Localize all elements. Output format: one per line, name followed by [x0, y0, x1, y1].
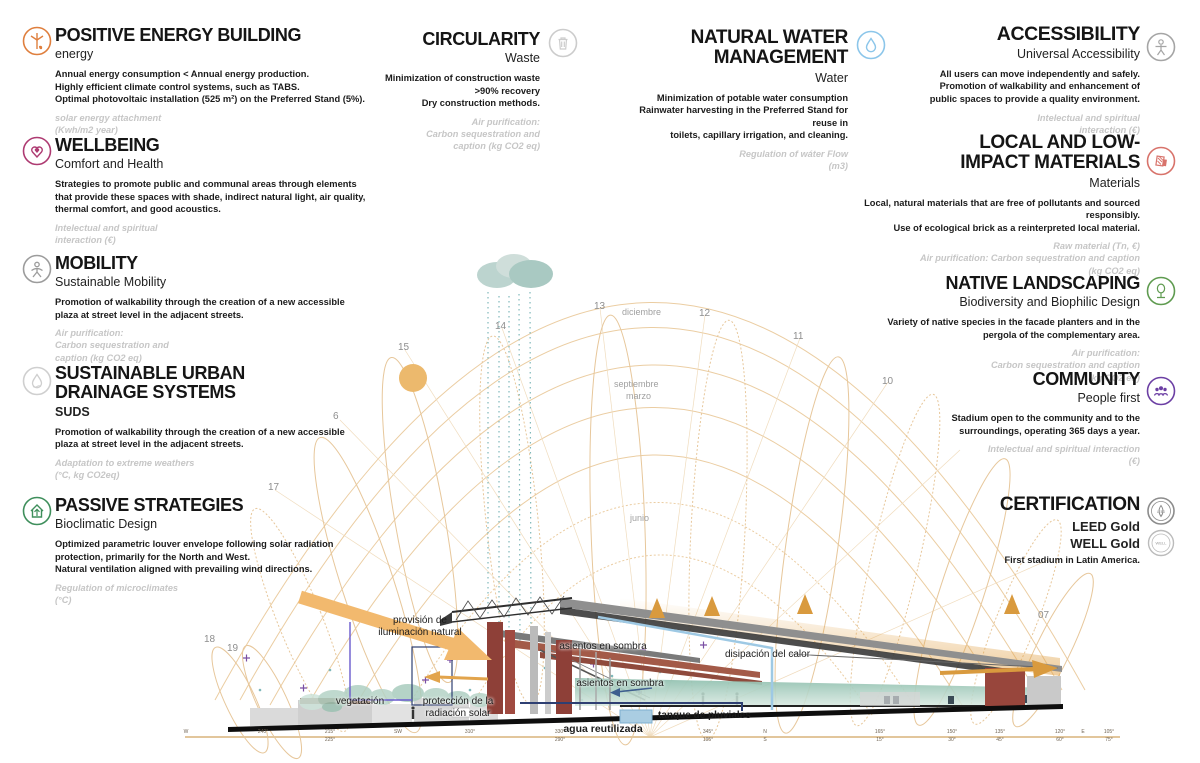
section-metric: Intelectual and spiritualinteraction (€) — [55, 222, 390, 246]
compass-tick: NS — [750, 729, 780, 744]
label-natural-light: provisión de iluminación natural — [355, 615, 485, 639]
compass-tick: 330°290° — [545, 729, 575, 744]
month-label: marzo — [626, 391, 651, 401]
hour-label: 13 — [594, 301, 605, 312]
brick-icon — [1146, 146, 1176, 176]
section-body: Strategies to promote public and communa… — [55, 178, 390, 216]
rainwater-tank — [620, 710, 652, 723]
section-subtitle: Biodiversity and Biophilic Design — [840, 295, 1140, 309]
pedestrian-icon — [22, 254, 52, 284]
reflected-light-arrow — [424, 671, 488, 683]
hour-label: 11 — [793, 331, 803, 342]
compass-tick: 345°195° — [693, 729, 723, 744]
compass-tick: 165°15° — [865, 729, 895, 744]
section-body: Local, natural materials that are free o… — [840, 197, 1140, 235]
cert-leed: LEED Gold — [840, 519, 1140, 534]
section-metric: Regulation of microclimates(°C) — [55, 582, 395, 606]
section-subtitle: Universal Accessibility — [840, 47, 1140, 61]
hour-label: 18 — [204, 634, 215, 645]
cloud-icon — [477, 254, 553, 288]
hour-label: 17 — [268, 482, 279, 493]
section-metric: Air purification:Carbon sequestration an… — [55, 327, 390, 363]
compass-tick: 310° — [455, 729, 485, 737]
section-title: LOCAL AND LOW-IMPACT MATERIALS — [840, 133, 1140, 174]
label-solar-protection: protección de la radiación solar — [408, 696, 508, 720]
section-metric: Regulation of wáter Flow(m3) — [618, 148, 848, 172]
section-metric: Air purification:Carbon sequestration an… — [310, 116, 540, 152]
section-accessibility: ACCESSIBILITY Universal Accessibility Al… — [840, 24, 1140, 136]
section-subtitle: People first — [840, 391, 1140, 405]
wind-turbine-icon — [22, 26, 52, 56]
section-subtitle: Water — [618, 71, 848, 85]
section-title: MOBILITY — [55, 254, 390, 273]
label-shade-upper: asientos en sombra — [518, 641, 688, 653]
section-wellbeing: WELLBEING Comfort and Health Strategies … — [55, 136, 390, 246]
section-subtitle: Sustainable Mobility — [55, 275, 390, 289]
well-badge-icon: WELL — [1146, 528, 1176, 558]
section-certification: CERTIFICATION LEED Gold WELL Gold First … — [840, 495, 1140, 567]
section-title: PASSIVE STRATEGIES — [55, 496, 395, 515]
section-body: Minimization of potable water consumptio… — [618, 92, 848, 142]
label-rain-tank: tanque de pluviales — [658, 710, 788, 722]
label-shade-lower: asientos en sombra — [555, 678, 685, 690]
hour-label: 07 — [1038, 610, 1049, 621]
month-label: diciembre — [622, 307, 661, 317]
hour-label: 15 — [398, 342, 409, 353]
passive-house-icon — [22, 496, 52, 526]
section-title: SUSTAINABLE URBANDRAINAGE SYSTEMS — [55, 364, 390, 403]
section-metric: Adaptation to extreme weathers(°C, kg CO… — [55, 457, 390, 481]
section-community: COMMUNITY People first Stadium open to t… — [840, 370, 1140, 468]
section-subtitle: Materials — [840, 176, 1140, 190]
compass-tick: 215°225° — [315, 729, 345, 744]
compass-tick: 150°30° — [937, 729, 967, 744]
section-body: Minimization of construction waste>90% r… — [310, 72, 540, 110]
section-body: All users can move independently and saf… — [840, 68, 1140, 106]
cert-note: First stadium in Latin America. — [840, 554, 1140, 567]
section-title: CIRCULARITY — [310, 30, 540, 49]
section-natural-water: NATURAL WATERMANAGEMENT Water Minimizati… — [618, 28, 848, 172]
sustainability-infographic-poster: provisión de iluminación natural asiento… — [0, 0, 1200, 763]
compass-tick: 240° — [248, 729, 278, 737]
hour-label: 19 — [227, 643, 238, 654]
section-title: ACCESSIBILITY — [840, 24, 1140, 45]
section-materials: LOCAL AND LOW-IMPACT MATERIALS Materials… — [840, 133, 1140, 277]
cert-well: WELL Gold — [840, 536, 1140, 551]
tree-icon — [1146, 276, 1176, 306]
month-label: septiembre — [614, 379, 659, 389]
section-subtitle: Comfort and Health — [55, 157, 390, 171]
section-title: NATIVE LANDSCAPING — [840, 274, 1140, 293]
compass-tick: W — [171, 729, 201, 737]
section-suds: SUSTAINABLE URBANDRAINAGE SYSTEMS SUDS P… — [55, 364, 390, 481]
label-vegetation: vegetación — [318, 696, 402, 708]
svg-text:LEED: LEED — [1157, 510, 1166, 514]
heart-icon — [22, 136, 52, 166]
section-title: NATURAL WATERMANAGEMENT — [618, 28, 848, 69]
svg-text:WELL: WELL — [1156, 541, 1168, 546]
section-body: Optimized parametric louver envelope fol… — [55, 538, 395, 576]
trash-bin-icon — [548, 28, 578, 58]
sun-icon — [399, 364, 427, 392]
section-title: CERTIFICATION — [840, 495, 1140, 515]
section-subtitle: SUDS — [55, 405, 390, 419]
compass-tick: 105°75° — [1094, 729, 1124, 744]
label-heat-dissipation: disipación del calor — [700, 649, 835, 661]
section-title: COMMUNITY — [840, 370, 1140, 389]
hour-label: 14 — [495, 321, 506, 332]
hour-label: 12 — [699, 308, 710, 319]
water-drop-gray-icon — [22, 366, 52, 396]
section-subtitle: Bioclimatic Design — [55, 517, 395, 531]
month-label: junio — [630, 513, 649, 523]
section-circularity: CIRCULARITY Waste Minimization of constr… — [310, 30, 540, 152]
section-subtitle: Waste — [310, 51, 540, 65]
section-body: Promotion of walkability through the cre… — [55, 426, 390, 451]
section-body: Promotion of walkability through the cre… — [55, 296, 390, 321]
section-body: Stadium open to the community and to the… — [840, 412, 1140, 437]
section-native-landscaping: NATIVE LANDSCAPING Biodiversity and Biop… — [840, 274, 1140, 384]
section-metric: Intelectual and spiritual interaction(€) — [840, 443, 1140, 467]
section-body: Variety of native species in the facade … — [840, 316, 1140, 341]
accessibility-person-icon — [1146, 32, 1176, 62]
community-people-icon — [1146, 376, 1176, 406]
leed-badge-icon: LEED — [1146, 496, 1176, 526]
compass-tick: 135°45° — [985, 729, 1015, 744]
section-passive-strategies: PASSIVE STRATEGIES Bioclimatic Design Op… — [55, 496, 395, 606]
section-mobility: MOBILITY Sustainable Mobility Promotion … — [55, 254, 390, 364]
compass-tick: SW — [383, 729, 413, 737]
section-metric: Raw material (Tn, €)Air purification: Ca… — [840, 240, 1140, 276]
